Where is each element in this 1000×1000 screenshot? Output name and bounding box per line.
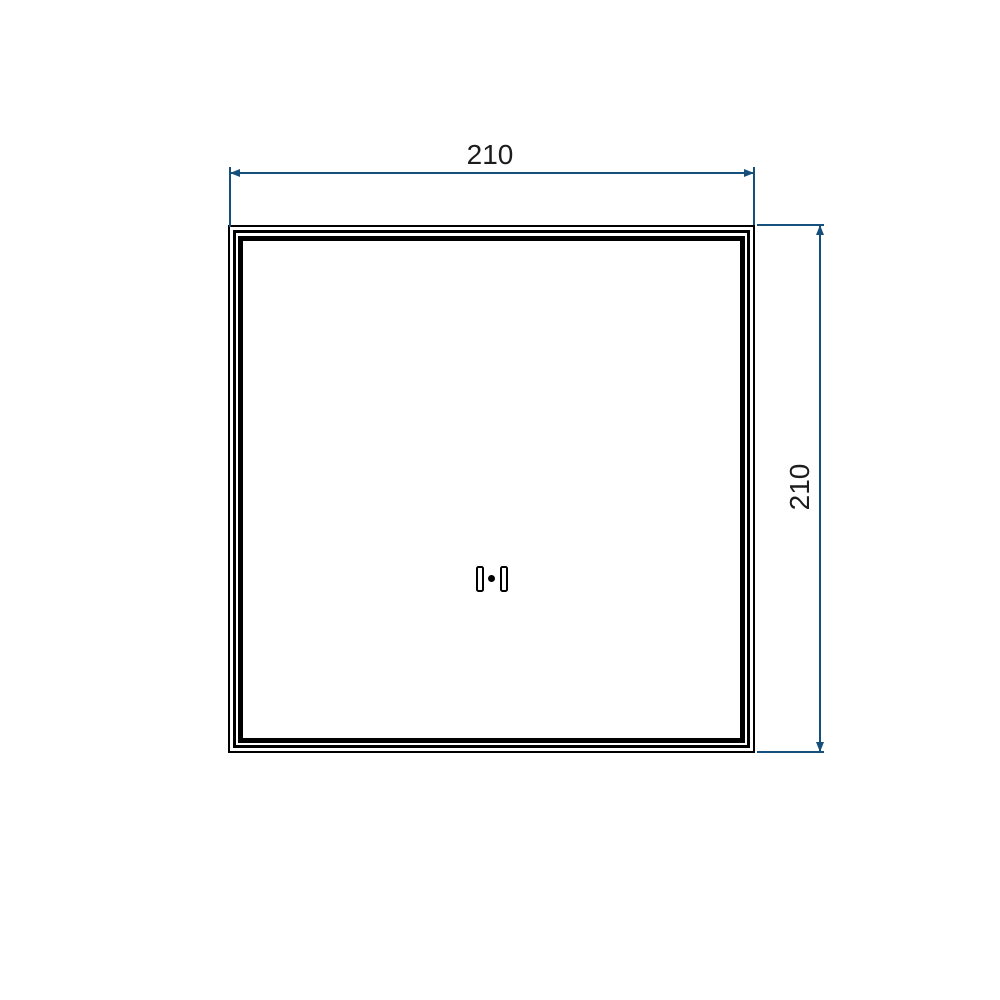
width-dimension-arrow-right-icon [744, 169, 754, 177]
width-dimension-line [230, 172, 754, 174]
panel-frame-inner-outline [238, 236, 745, 743]
drawing-canvas: 210 210 [0, 0, 1000, 1000]
height-dimension-extension-line-top [757, 224, 824, 226]
handle-center-dot-icon [488, 575, 495, 582]
height-dimension-line [819, 225, 821, 752]
handle-left-bracket-icon [476, 566, 484, 592]
height-dimension-label: 210 [785, 427, 815, 547]
height-dimension-arrow-down-icon [816, 742, 824, 752]
width-dimension-label: 210 [430, 140, 550, 170]
width-dimension-arrow-left-icon [230, 169, 240, 177]
height-dimension-arrow-up-icon [816, 225, 824, 235]
handle-right-bracket-icon [500, 566, 508, 592]
height-dimension-extension-line-bottom [757, 751, 824, 753]
